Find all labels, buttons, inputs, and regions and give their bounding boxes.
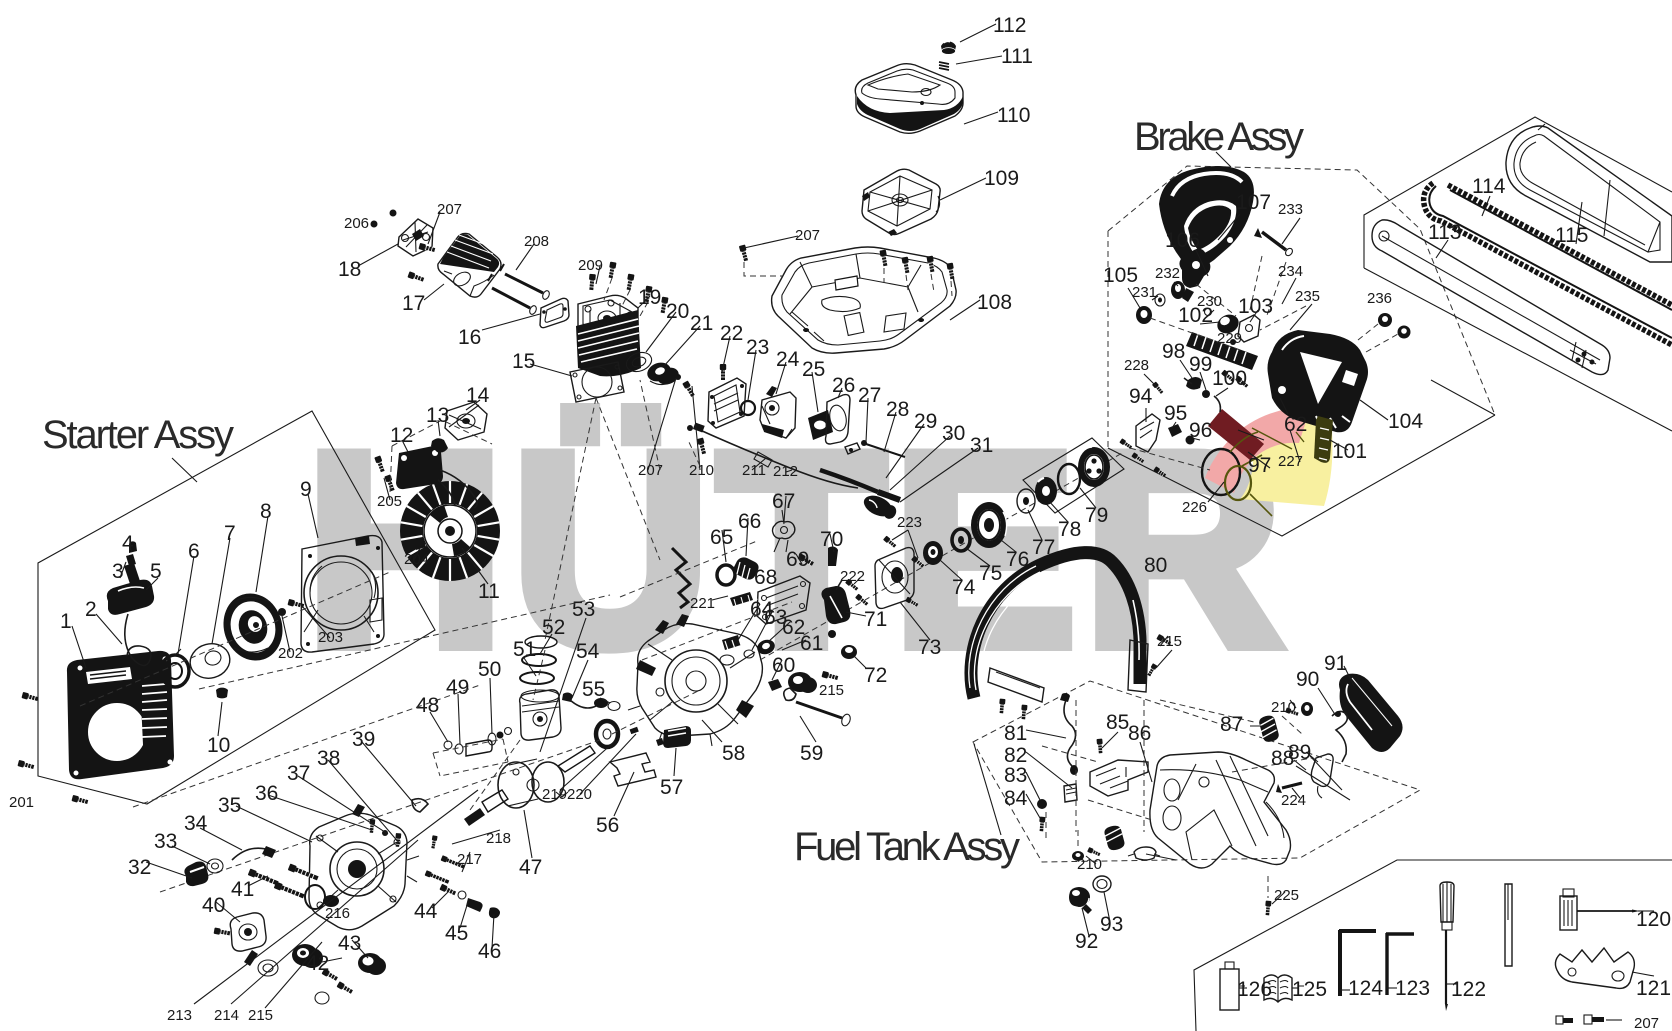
svg-text:9: 9 [300, 478, 312, 501]
svg-text:44: 44 [414, 900, 438, 923]
svg-text:35: 35 [218, 794, 241, 817]
svg-text:84: 84 [1004, 787, 1028, 810]
svg-text:51: 51 [513, 638, 536, 661]
svg-text:Fuel Tank Assy: Fuel Tank Assy [794, 825, 1020, 869]
svg-text:78: 78 [1058, 518, 1081, 541]
svg-text:81: 81 [1004, 722, 1027, 745]
svg-text:7: 7 [224, 522, 236, 545]
svg-text:92: 92 [1075, 930, 1098, 953]
svg-text:202: 202 [278, 645, 303, 662]
svg-text:11: 11 [478, 580, 500, 603]
svg-text:110: 110 [997, 104, 1030, 127]
svg-text:30: 30 [942, 422, 965, 445]
svg-text:34: 34 [184, 812, 208, 835]
svg-text:122: 122 [1451, 978, 1486, 1001]
svg-text:18: 18 [338, 258, 361, 281]
svg-text:214: 214 [214, 1007, 239, 1024]
svg-text:62: 62 [1284, 413, 1307, 436]
svg-text:79: 79 [1085, 504, 1108, 527]
svg-text:111: 111 [1001, 45, 1033, 68]
svg-text:206: 206 [344, 215, 369, 232]
svg-text:211: 211 [742, 462, 766, 479]
svg-text:60: 60 [772, 654, 795, 677]
svg-text:232: 232 [1155, 265, 1180, 282]
svg-text:113: 113 [1428, 221, 1461, 244]
svg-text:215: 215 [819, 682, 844, 699]
svg-text:Starter Assy: Starter Assy [42, 413, 234, 457]
svg-text:37: 37 [287, 762, 310, 785]
svg-text:210: 210 [1077, 856, 1102, 873]
svg-text:103: 103 [1238, 295, 1273, 318]
svg-text:217: 217 [457, 851, 482, 868]
svg-text:68: 68 [754, 566, 777, 589]
svg-text:235: 235 [1295, 288, 1320, 305]
svg-text:93: 93 [1100, 913, 1123, 936]
svg-text:17: 17 [402, 292, 425, 315]
svg-text:221: 221 [690, 595, 715, 612]
svg-text:120: 120 [1636, 908, 1671, 931]
svg-text:219: 219 [542, 786, 567, 803]
svg-text:76: 76 [1006, 548, 1029, 571]
svg-text:66: 66 [738, 510, 761, 533]
svg-text:108: 108 [977, 291, 1012, 314]
svg-text:234: 234 [1278, 263, 1303, 280]
svg-text:209: 209 [578, 257, 603, 274]
svg-text:124: 124 [1348, 977, 1383, 1000]
svg-text:4: 4 [122, 532, 134, 555]
svg-text:65: 65 [710, 526, 733, 549]
svg-text:208: 208 [524, 233, 549, 250]
svg-text:52: 52 [542, 616, 565, 639]
svg-text:224: 224 [1281, 792, 1306, 809]
svg-text:123: 123 [1395, 977, 1430, 1000]
svg-text:112: 112 [993, 14, 1026, 37]
svg-text:99: 99 [1189, 353, 1212, 376]
svg-text:74: 74 [952, 576, 976, 599]
svg-text:104: 104 [1388, 410, 1423, 433]
svg-text:230: 230 [1197, 293, 1222, 310]
svg-text:39: 39 [352, 728, 375, 751]
svg-text:225: 225 [1274, 887, 1299, 904]
svg-text:80: 80 [1144, 554, 1167, 577]
svg-text:223: 223 [897, 514, 922, 531]
svg-text:67: 67 [772, 490, 795, 513]
svg-text:27: 27 [858, 384, 881, 407]
svg-text:210: 210 [1271, 699, 1296, 716]
svg-text:43: 43 [338, 932, 361, 955]
svg-text:212: 212 [773, 463, 798, 480]
svg-text:33: 33 [154, 830, 177, 853]
svg-text:45: 45 [445, 922, 468, 945]
svg-text:207: 207 [437, 201, 462, 218]
svg-text:100: 100 [1212, 367, 1247, 390]
svg-text:14: 14 [466, 384, 490, 407]
svg-text:72: 72 [864, 664, 887, 687]
svg-text:29: 29 [914, 410, 937, 433]
svg-text:204: 204 [404, 551, 429, 568]
svg-text:70: 70 [820, 528, 843, 551]
svg-text:25: 25 [802, 358, 825, 381]
svg-text:98: 98 [1162, 340, 1185, 363]
svg-text:210: 210 [689, 462, 714, 479]
svg-text:38: 38 [317, 747, 340, 770]
svg-text:231: 231 [1132, 284, 1157, 301]
svg-text:107: 107 [1236, 191, 1271, 214]
svg-text:24: 24 [776, 348, 800, 371]
svg-text:121: 121 [1636, 977, 1671, 1000]
svg-text:6: 6 [188, 540, 200, 563]
svg-text:203: 203 [318, 629, 343, 646]
svg-text:32: 32 [128, 856, 151, 879]
svg-text:58: 58 [722, 742, 745, 765]
svg-text:227: 227 [1278, 453, 1303, 470]
svg-text:126: 126 [1237, 978, 1272, 1001]
svg-text:19: 19 [638, 286, 661, 309]
svg-text:50: 50 [478, 658, 501, 681]
svg-text:41: 41 [231, 878, 254, 901]
svg-text:8: 8 [260, 500, 272, 523]
svg-text:75: 75 [979, 562, 1002, 585]
svg-text:36: 36 [255, 782, 278, 805]
svg-text:69: 69 [786, 548, 809, 571]
svg-text:31: 31 [970, 434, 993, 457]
svg-text:109: 109 [984, 167, 1019, 190]
svg-text:56: 56 [596, 814, 619, 837]
svg-text:205: 205 [377, 493, 402, 510]
svg-text:83: 83 [1004, 764, 1027, 787]
svg-text:59: 59 [800, 742, 823, 765]
svg-text:10: 10 [207, 734, 230, 757]
svg-text:96: 96 [1189, 419, 1212, 442]
svg-text:21: 21 [690, 312, 713, 335]
svg-text:229: 229 [1217, 330, 1242, 347]
svg-text:57: 57 [660, 776, 683, 799]
svg-text:13: 13 [426, 404, 449, 427]
svg-text:226: 226 [1182, 499, 1207, 516]
svg-text:236: 236 [1367, 290, 1392, 307]
svg-text:54: 54 [576, 640, 600, 663]
svg-text:90: 90 [1296, 668, 1319, 691]
svg-text:228: 228 [1124, 357, 1149, 374]
svg-text:215: 215 [1157, 633, 1182, 650]
svg-text:1: 1 [60, 610, 72, 633]
svg-text:201: 201 [9, 794, 34, 811]
svg-text:40: 40 [202, 894, 225, 917]
svg-text:48: 48 [416, 694, 439, 717]
svg-text:16: 16 [458, 326, 481, 349]
svg-text:85: 85 [1106, 711, 1129, 734]
svg-text:213: 213 [167, 1007, 192, 1024]
svg-text:215: 215 [248, 1007, 273, 1024]
svg-text:23: 23 [746, 336, 769, 359]
svg-text:97: 97 [1248, 454, 1271, 477]
svg-text:20: 20 [666, 300, 689, 323]
svg-text:115: 115 [1555, 224, 1588, 247]
svg-text:26: 26 [832, 374, 855, 397]
svg-text:101: 101 [1332, 440, 1367, 463]
svg-text:114: 114 [1472, 175, 1506, 198]
svg-text:55: 55 [582, 678, 605, 701]
svg-text:5: 5 [150, 560, 162, 583]
svg-text:220: 220 [567, 786, 592, 803]
svg-text:207: 207 [1634, 1015, 1659, 1031]
svg-text:216: 216 [325, 905, 350, 922]
svg-text:222: 222 [840, 568, 865, 585]
svg-text:71: 71 [864, 608, 887, 631]
svg-text:218: 218 [486, 830, 511, 847]
svg-text:3: 3 [112, 560, 124, 583]
svg-text:125: 125 [1292, 978, 1327, 1001]
svg-text:Brake Assy: Brake Assy [1134, 115, 1304, 159]
svg-text:46: 46 [478, 940, 501, 963]
svg-text:64: 64 [750, 598, 774, 621]
svg-text:89: 89 [1288, 741, 1311, 764]
svg-text:86: 86 [1128, 722, 1151, 745]
svg-text:207: 207 [795, 227, 820, 244]
svg-text:15: 15 [512, 350, 535, 373]
svg-text:47: 47 [519, 856, 542, 879]
svg-text:22: 22 [720, 322, 743, 345]
svg-text:42: 42 [306, 952, 329, 975]
svg-text:233: 233 [1278, 201, 1303, 218]
svg-text:106: 106 [1165, 229, 1200, 252]
svg-text:91: 91 [1324, 652, 1347, 675]
svg-text:2: 2 [85, 598, 97, 621]
svg-text:12: 12 [390, 424, 413, 447]
svg-text:95: 95 [1164, 402, 1187, 425]
svg-text:77: 77 [1032, 536, 1055, 559]
svg-text:94: 94 [1129, 385, 1153, 408]
svg-text:28: 28 [886, 398, 909, 421]
svg-text:73: 73 [918, 636, 941, 659]
svg-text:87: 87 [1220, 713, 1243, 736]
